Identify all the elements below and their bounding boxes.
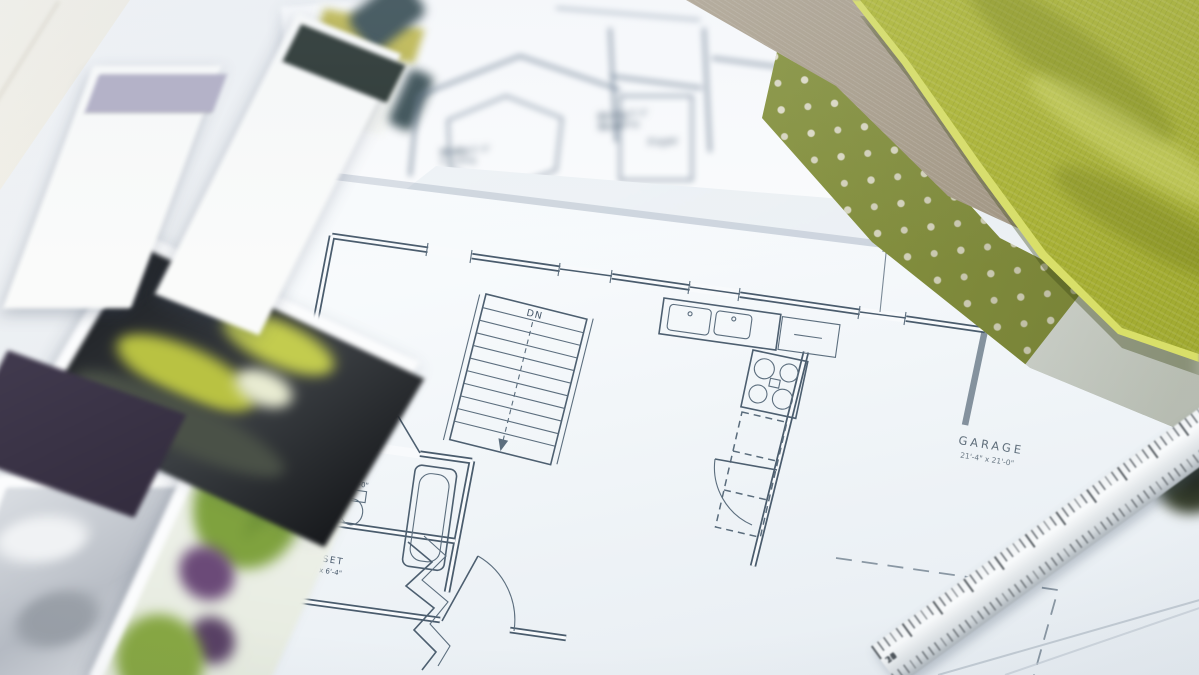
designer-workspace-photo: Study 14'-0"x12'-0" 9' ceiling Dining Ro… bbox=[0, 0, 1199, 675]
vignette-overlay bbox=[0, 0, 1199, 675]
